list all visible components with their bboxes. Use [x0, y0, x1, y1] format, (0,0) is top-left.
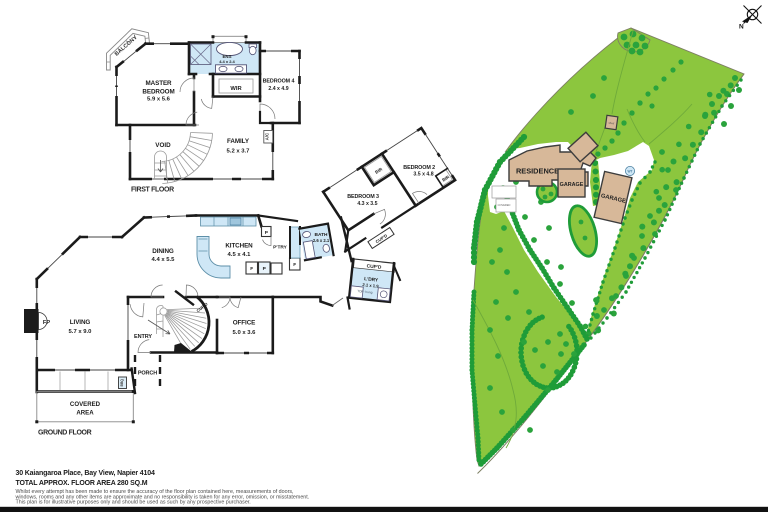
- svg-text:BIR: BIR: [374, 166, 384, 175]
- svg-text:OFFICE: OFFICE: [233, 320, 256, 327]
- svg-text:BEDROOM 4: BEDROOM 4: [263, 79, 295, 85]
- svg-text:FIRST FLOOR: FIRST FLOOR: [131, 187, 174, 194]
- svg-text:GARAGE: GARAGE: [560, 182, 584, 188]
- svg-text:5.0 x 3.6: 5.0 x 3.6: [233, 330, 257, 336]
- svg-text:3.5 x 4.8: 3.5 x 4.8: [413, 172, 433, 178]
- svg-text:4.3 x 3.5: 4.3 x 3.5: [357, 201, 377, 207]
- svg-text:BEDROOM: BEDROOM: [142, 89, 174, 96]
- svg-text:N: N: [739, 24, 744, 31]
- svg-text:2.6 x 2.1: 2.6 x 2.1: [313, 238, 330, 243]
- svg-text:VOID: VOID: [155, 142, 171, 149]
- svg-text:LIVING: LIVING: [70, 319, 91, 326]
- svg-text:WT: WT: [628, 170, 633, 174]
- svg-text:TOTAL APPROX. FLOOR AREA 280 S: TOTAL APPROX. FLOOR AREA 280 SQ.M: [16, 480, 148, 487]
- svg-text:4.4 x 2.4: 4.4 x 2.4: [219, 59, 235, 64]
- svg-text:30 Kaiangaroa Place, Bay View,: 30 Kaiangaroa Place, Bay View, Napier 41…: [16, 470, 155, 477]
- svg-text:BEDROOM 2: BEDROOM 2: [403, 165, 435, 171]
- svg-text:4.5 x 4.1: 4.5 x 4.1: [228, 252, 252, 258]
- svg-text:KITCHEN: KITCHEN: [225, 243, 253, 250]
- svg-text:P'TRY: P'TRY: [273, 245, 288, 251]
- svg-text:5.7 x 9.0: 5.7 x 9.0: [69, 329, 93, 335]
- svg-text:BEDROOM 3: BEDROOM 3: [347, 194, 379, 200]
- svg-text:2.4 x 4.9: 2.4 x 4.9: [268, 86, 288, 92]
- svg-text:5.9 x 5.6: 5.9 x 5.6: [147, 97, 171, 103]
- svg-text:WIR: WIR: [230, 86, 242, 92]
- svg-text:GROUND FLOOR: GROUND FLOOR: [38, 430, 92, 437]
- svg-text:This plan is for illustrative: This plan is for illustrative purposes o…: [16, 500, 251, 506]
- svg-text:PORCH: PORCH: [138, 371, 157, 377]
- svg-text:ENTRY: ENTRY: [134, 334, 152, 340]
- svg-text:FAMILY: FAMILY: [227, 138, 250, 145]
- svg-text:5.2 x 3.7: 5.2 x 3.7: [227, 149, 251, 155]
- svg-text:4.4 x 5.5: 4.4 x 5.5: [152, 257, 176, 263]
- svg-text:A/C: A/C: [265, 132, 270, 140]
- svg-text:DINING: DINING: [152, 248, 174, 255]
- svg-text:BBQ: BBQ: [120, 379, 124, 387]
- svg-text:AREA: AREA: [76, 410, 94, 417]
- svg-text:FP: FP: [43, 320, 50, 326]
- svg-text:F: F: [250, 266, 253, 272]
- svg-text:COVERED: COVERED: [70, 401, 101, 408]
- svg-text:F: F: [293, 262, 296, 268]
- svg-text:MASTER: MASTER: [146, 80, 173, 87]
- svg-text:RESIDENCE: RESIDENCE: [516, 167, 559, 176]
- svg-text:COVERED: COVERED: [498, 203, 511, 207]
